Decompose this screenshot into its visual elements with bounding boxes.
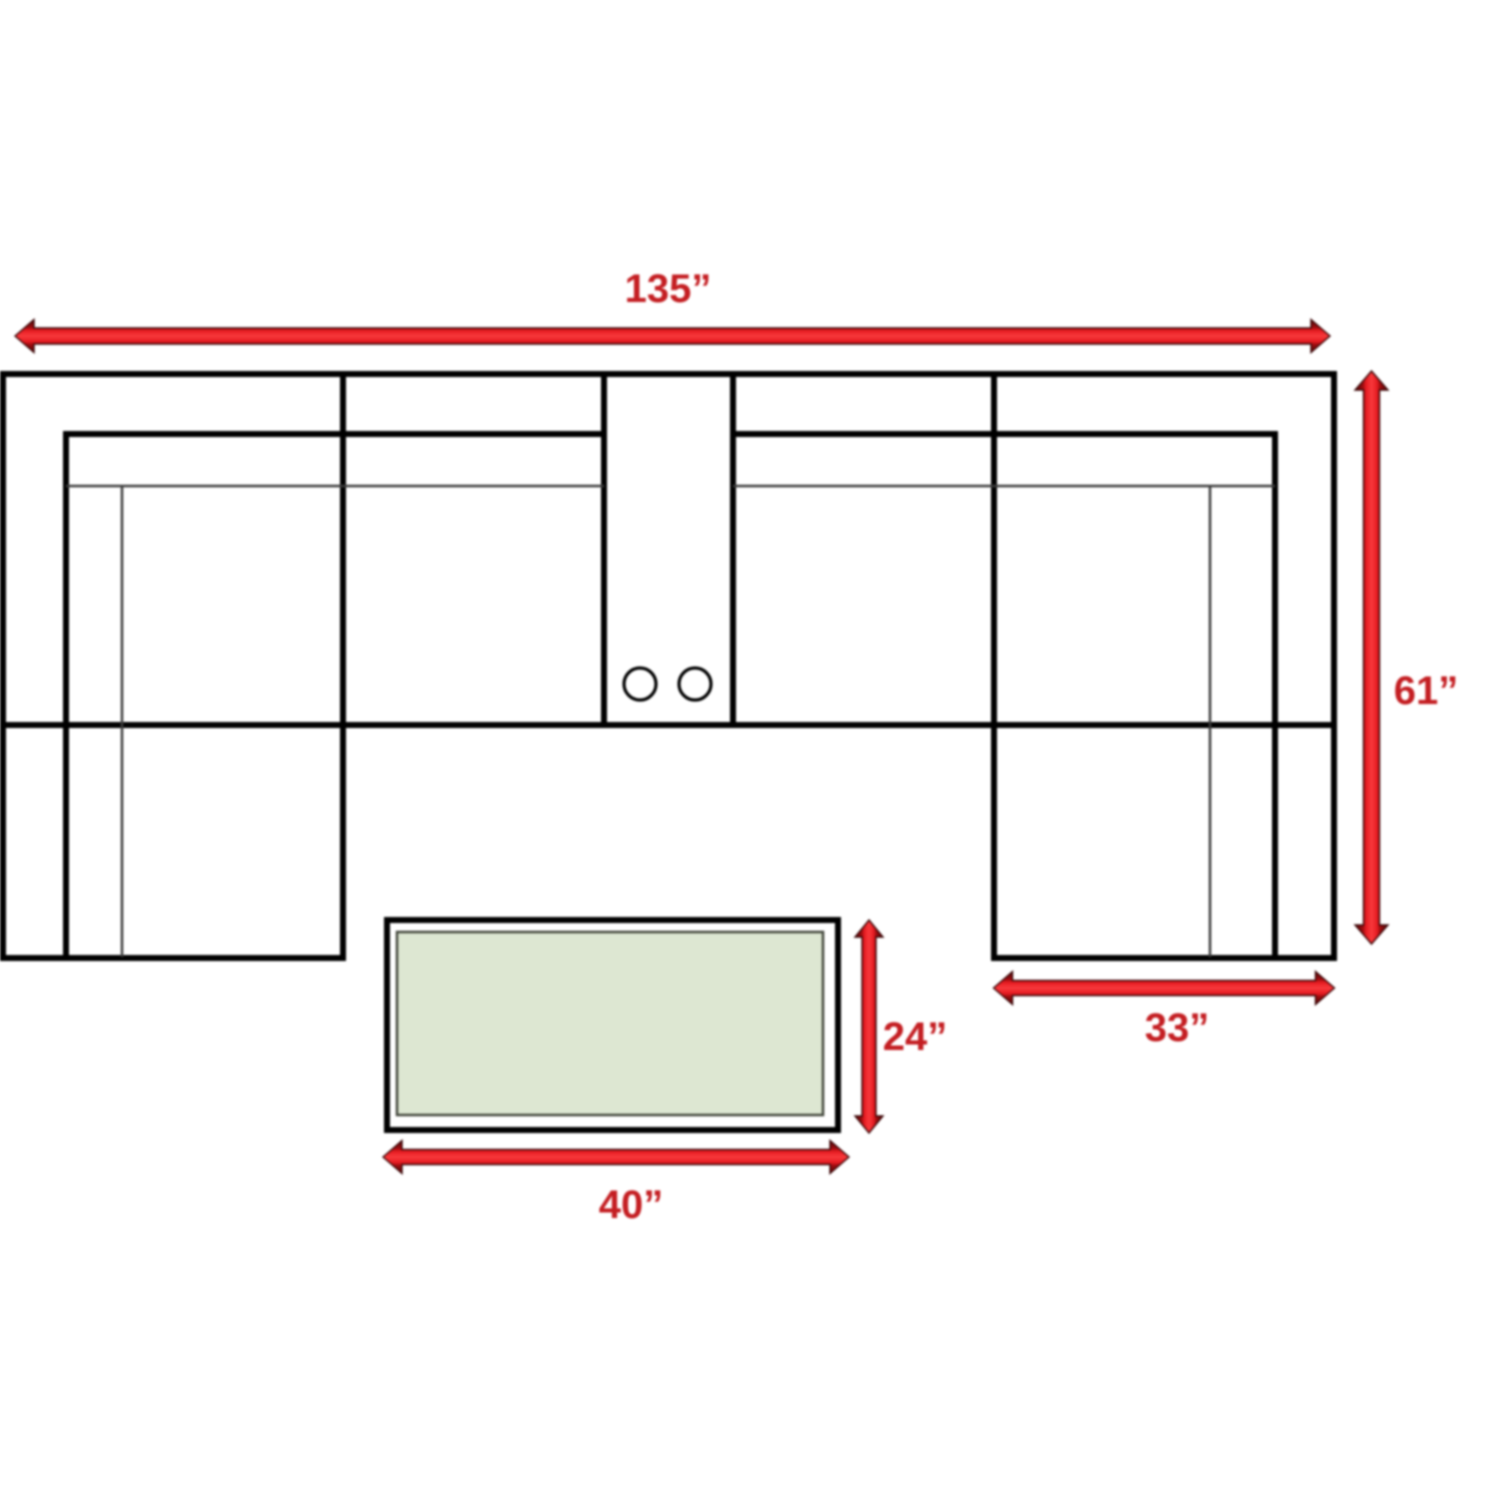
- svg-text:61”: 61”: [1394, 669, 1459, 713]
- svg-text:33”: 33”: [1145, 1006, 1210, 1050]
- svg-text:135”: 135”: [625, 267, 712, 311]
- svg-text:40”: 40”: [599, 1183, 664, 1227]
- svg-text:24”: 24”: [883, 1015, 948, 1059]
